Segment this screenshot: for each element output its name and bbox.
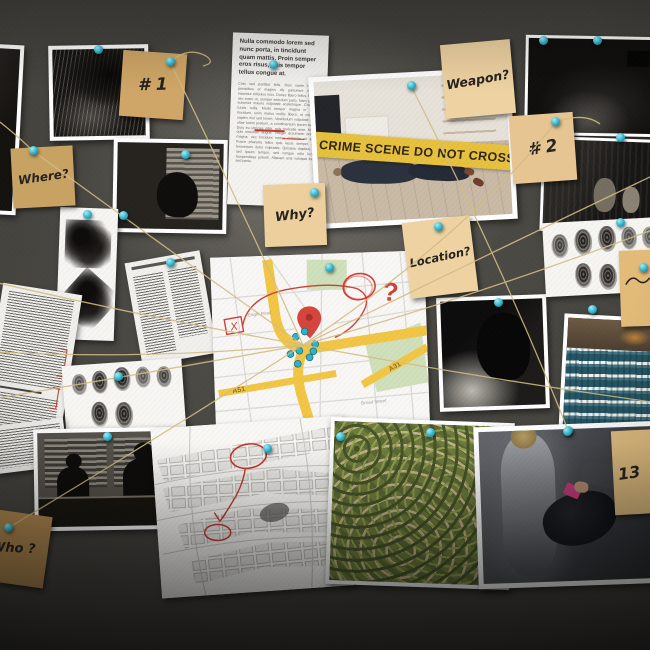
note-weapon-label: Weapon? [445,66,510,92]
evidence-board: # 1 Where? Nulla commodo lorem sed nunc … [0,0,650,650]
sticky-note-13: 13 [611,429,650,516]
note-location-label: Location? [408,244,472,271]
photo-window-crouch-image [116,142,223,230]
push-pin [29,146,38,155]
push-pin [166,57,175,66]
push-pin [563,427,572,436]
red-bracket-2 [49,387,59,410]
fingerprint [574,229,593,256]
push-pin [166,258,175,267]
street-map-drawing: A51 A31 Eagle Road Broad Street X ? [210,250,430,429]
push-pin [434,222,443,231]
push-pin [269,60,278,69]
sticky-note-where: Where? [10,145,75,208]
ink-blot-1 [64,219,112,269]
fingerprint [71,374,87,396]
push-pin [325,263,334,272]
fingerprint [598,263,617,290]
fingerprint [620,226,637,250]
clipping-column-2 [167,266,207,339]
fingerprint [551,234,569,259]
push-pin [83,210,92,219]
sticky-note-right-edge [619,249,650,327]
push-pin [181,150,190,159]
push-pin [616,133,625,142]
push-pin [4,523,13,532]
note-number1-label: # 1 [138,75,168,96]
fingerprint [641,226,650,249]
porch-figure-2 [622,186,640,213]
photo-hooded-figure-image [440,298,546,407]
push-pin [426,428,435,437]
parcel-map-drawing [150,416,353,599]
parcel-map [150,416,353,599]
hooded-silhouette [475,311,530,381]
crouching-silhouette [157,172,198,217]
wall-frame [627,51,649,67]
push-pin [616,218,625,227]
fingerprint [91,370,109,394]
push-pin [593,36,602,45]
push-pin [114,372,123,381]
push-pin [407,81,416,90]
sticky-note-who: Who ? [0,507,53,588]
note-13-label: 13 [617,462,642,484]
sticky-note-number2: # 2 [509,112,578,184]
pen-scribble [623,270,650,295]
push-pin [310,188,319,197]
sticky-note-weapon: Weapon? [440,39,516,119]
push-pin [494,298,503,307]
photo-hooded-figure [436,294,550,412]
push-pin [263,444,272,453]
fingerprint [574,263,592,289]
push-pin [94,45,103,54]
photo-window-crouch [112,138,228,234]
push-pin [588,305,597,314]
newspaper-body: Cras sed porttitor felis. Duis sante nat… [235,82,320,167]
fingerprint [597,225,616,252]
push-pin [103,432,112,441]
note-why-label: Why? [274,205,315,225]
newspaper-clipping-small [125,250,218,366]
push-pin [551,117,560,126]
push-pin [119,211,128,220]
fingerprint [114,401,134,428]
street-map: A51 A31 Eagle Road Broad Street X ? [210,250,430,429]
red-question-mark: ? [381,276,400,307]
note-who-label: Who ? [0,539,36,556]
push-pin [336,432,345,441]
fingerprint [90,401,109,427]
victim-torso [341,160,418,184]
porch-figure-1 [593,178,616,213]
fingerprint [135,366,151,388]
note-where-label: Where? [17,167,69,188]
push-pin [639,263,648,272]
fingerprint [156,366,172,388]
sticky-note-number1: # 1 [119,50,187,120]
push-pin [539,36,548,45]
note-number2-label: # 2 [527,136,559,160]
newspaper-headline: Nulla commodo lorem sed nunc porta, in t… [238,39,321,81]
